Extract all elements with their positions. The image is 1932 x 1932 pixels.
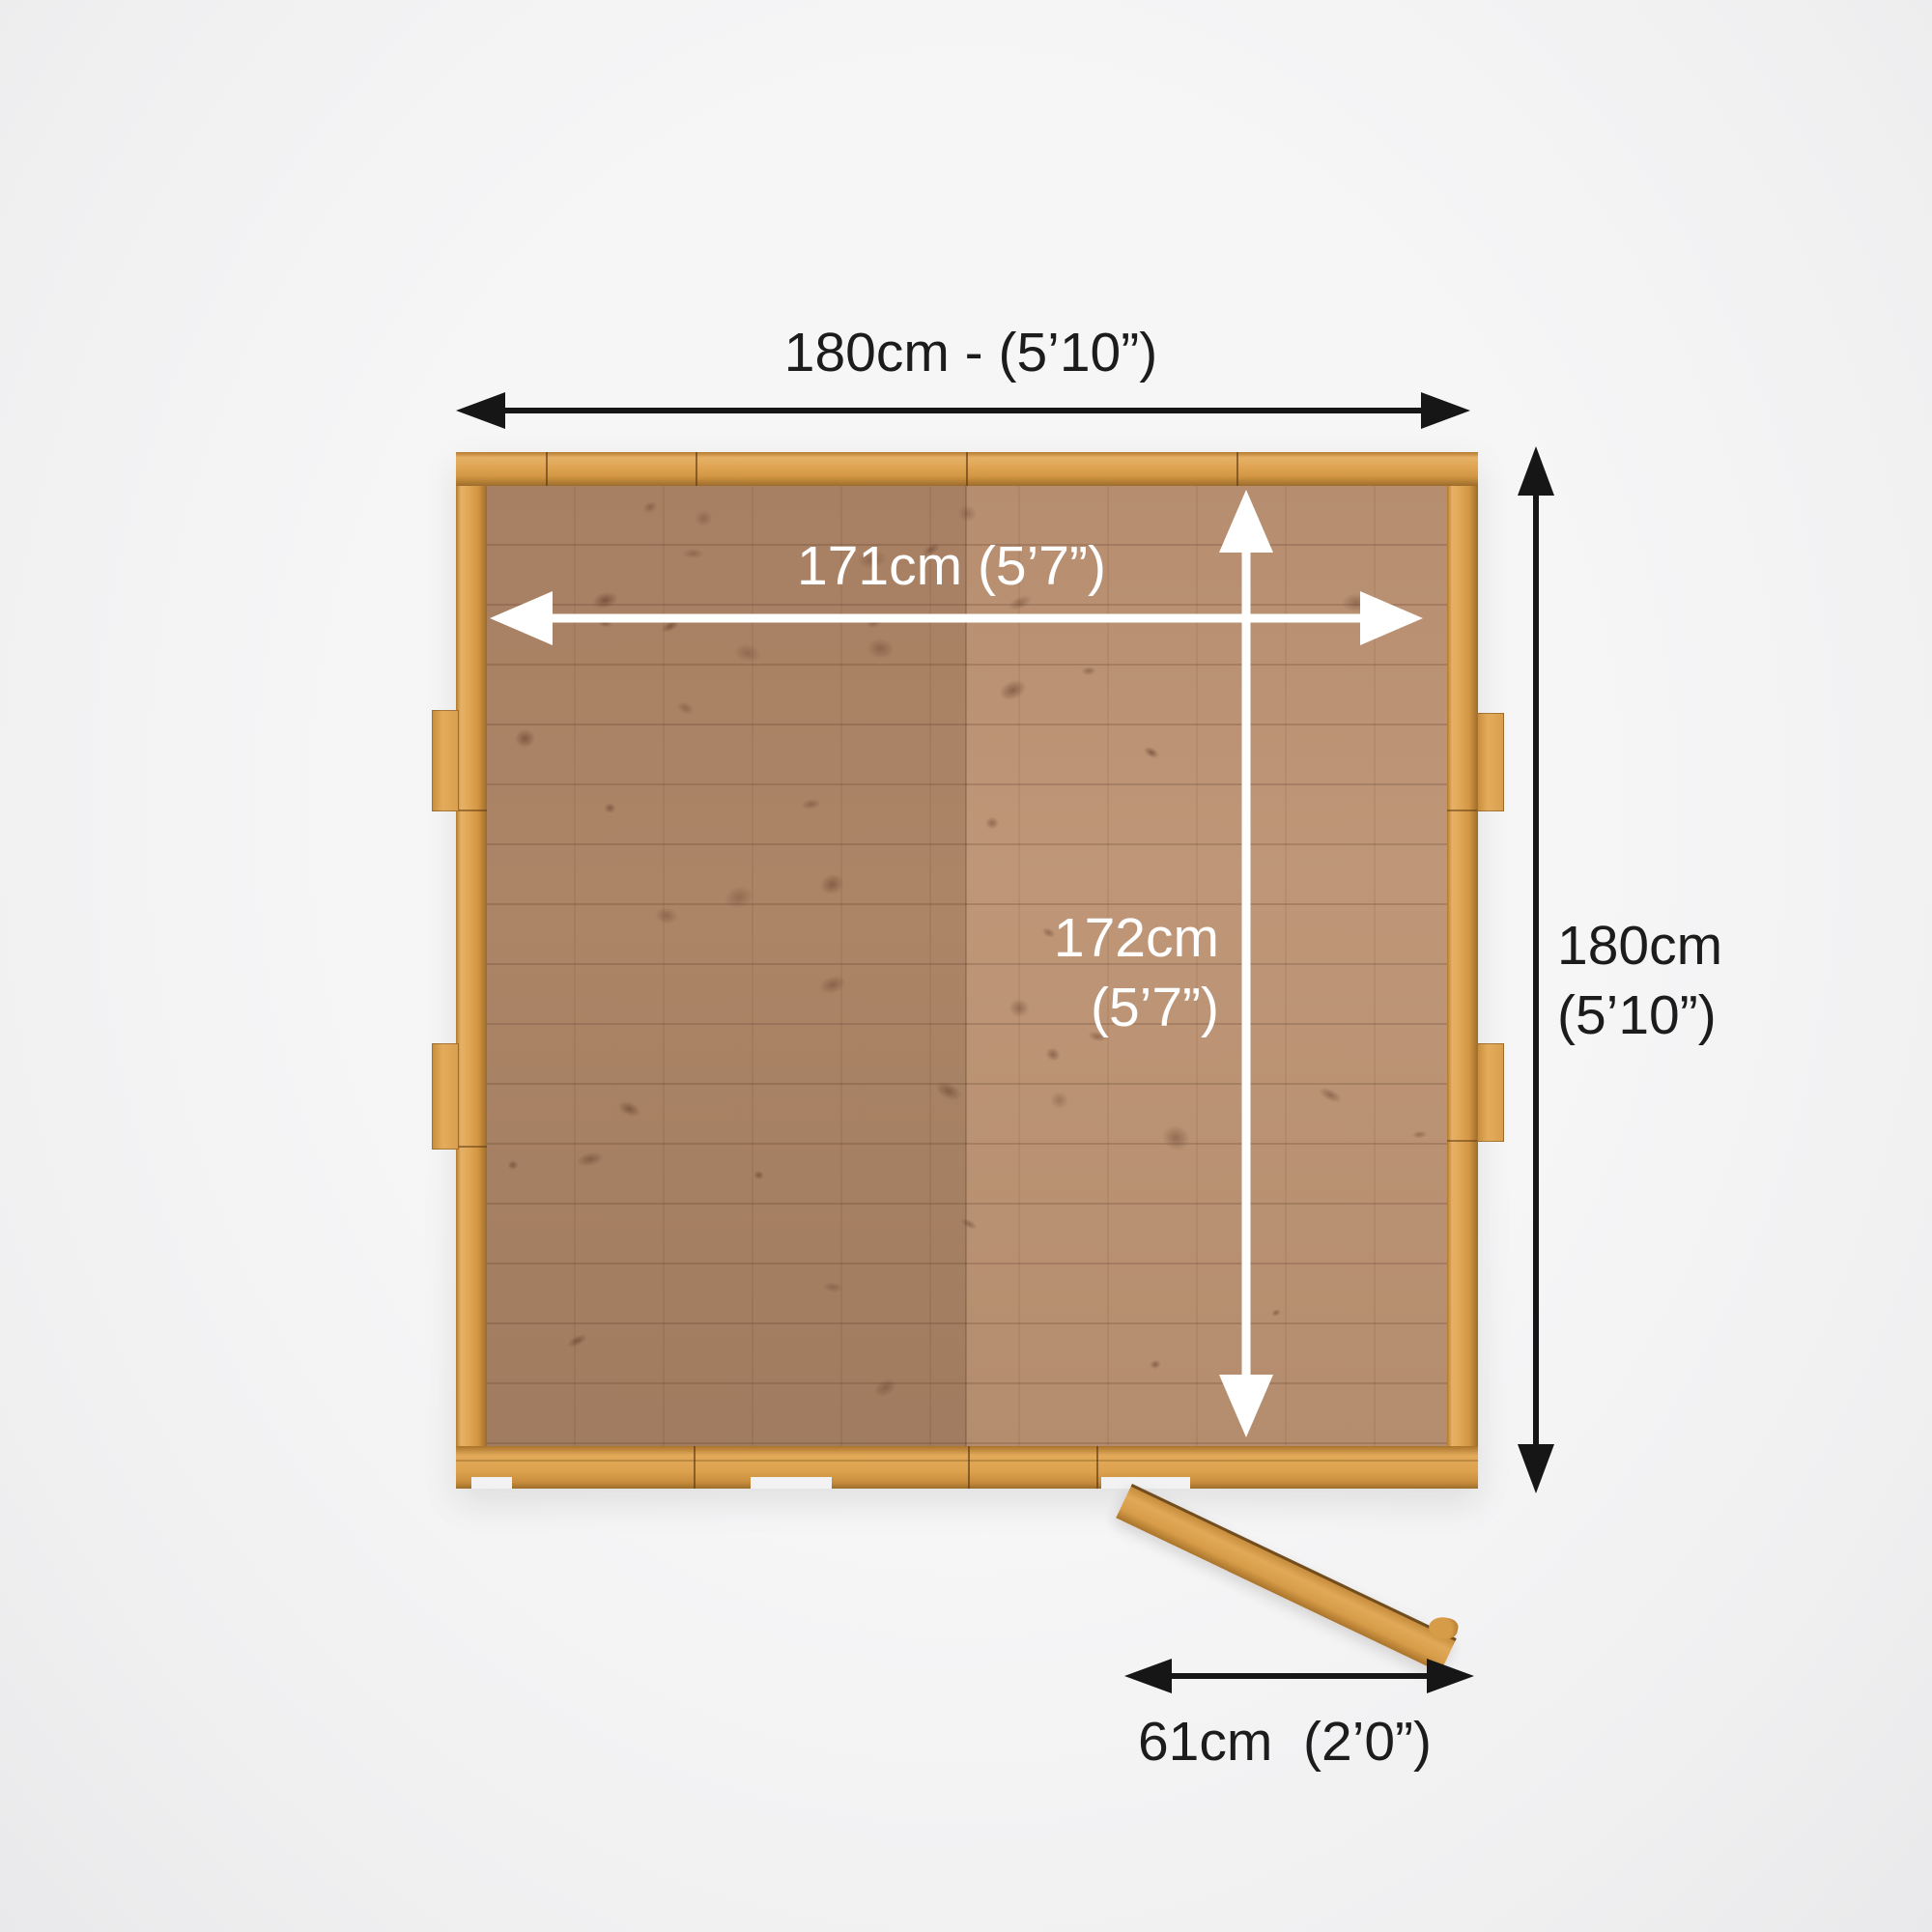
outer-depth-label: 180cm (5’10”) — [1557, 912, 1789, 1051]
inner-depth-label: 172cm (5’7”) — [920, 904, 1219, 1043]
door-handle — [1427, 1614, 1460, 1641]
shed-dimension-diagram: 180cm - (5’10”) 171cm (5’7”) 172cm (5’7”… — [0, 0, 1932, 1932]
shed-wall-left — [456, 452, 487, 1489]
shed-wall-right — [1447, 452, 1478, 1489]
frame-notch — [751, 1477, 832, 1489]
wall-tab-right-upper — [1477, 713, 1504, 811]
inner-depth-line2: (5’7”) — [920, 974, 1219, 1043]
door-width-label: 61cm (2’0”) — [1024, 1710, 1546, 1774]
wall-tab-left-lower — [432, 1043, 459, 1150]
outer-depth-line2: (5’10”) — [1557, 981, 1789, 1051]
outer-depth-arrow — [1518, 446, 1554, 1493]
door-panel — [1116, 1484, 1457, 1672]
wall-tab-left-upper — [432, 710, 459, 811]
door-opening-notch — [1101, 1477, 1190, 1489]
outer-depth-line1: 180cm — [1557, 912, 1789, 981]
inner-width-label: 171cm (5’7”) — [613, 534, 1290, 598]
frame-notch — [471, 1477, 512, 1489]
outer-width-label: 180cm - (5’10”) — [633, 321, 1309, 384]
inner-depth-line1: 172cm — [920, 904, 1219, 974]
shed-wall-bottom — [456, 1446, 1478, 1489]
wall-tab-right-lower — [1477, 1043, 1504, 1142]
shed-wall-top — [456, 452, 1478, 486]
outer-width-arrow — [456, 392, 1470, 429]
